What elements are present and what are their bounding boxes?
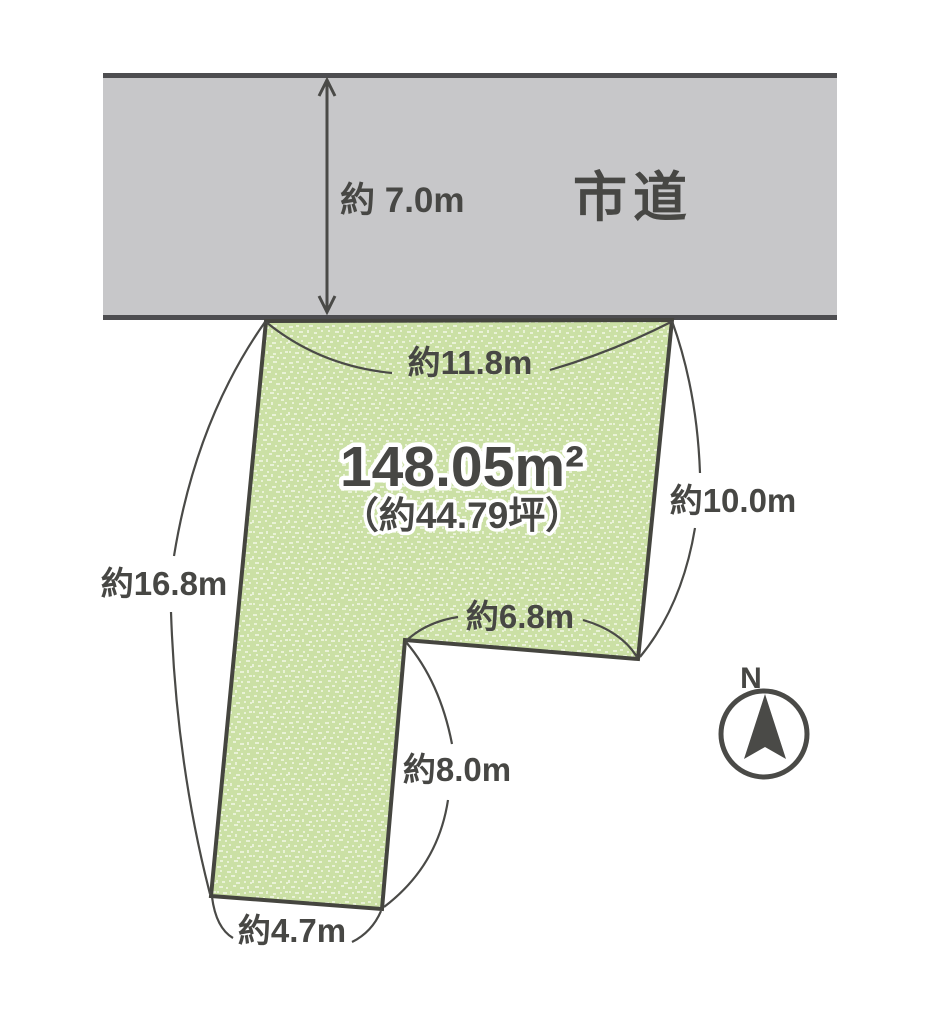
road: 市道 約 7.0m	[103, 73, 837, 320]
land-plot: 148.05m² （約44.79坪）	[211, 320, 672, 909]
land-plot-diagram: 市道 約 7.0m 148.05m² （約44.79坪） 約11.8m 約10.	[0, 0, 939, 1024]
road-top-border	[103, 73, 837, 78]
dimension-arc	[406, 642, 452, 744]
dimension-arc	[171, 612, 210, 894]
dimension-label-left: 約16.8m	[101, 565, 228, 602]
dimension-arc	[212, 897, 233, 938]
plot-area-sqm-label: 148.05m²	[340, 435, 584, 499]
road-band	[103, 76, 837, 317]
plot-area-tsubo-label: （約44.79坪）	[342, 495, 583, 536]
dimension-arc	[352, 911, 381, 942]
road-label: 市道	[573, 168, 693, 228]
dimension-label-top: 約11.8m	[408, 344, 533, 381]
plot-polygon	[211, 320, 672, 909]
north-arrow-icon	[744, 694, 786, 759]
dimension-arc	[384, 800, 448, 907]
compass: N	[721, 662, 807, 777]
road-width-label: 約 7.0m	[340, 181, 465, 220]
dimension-label-notch: 約6.8m	[466, 598, 574, 635]
compass-north-label: N	[740, 662, 762, 695]
dimension-label-right: 約10.0m	[670, 482, 797, 519]
dimension-arc	[672, 321, 700, 473]
dimension-label-bottom: 約4.7m	[238, 912, 346, 949]
dimension-label-leg-right: 約8.0m	[403, 751, 511, 788]
diagram-canvas: 市道 約 7.0m 148.05m² （約44.79坪） 約11.8m 約10.	[0, 0, 939, 1024]
